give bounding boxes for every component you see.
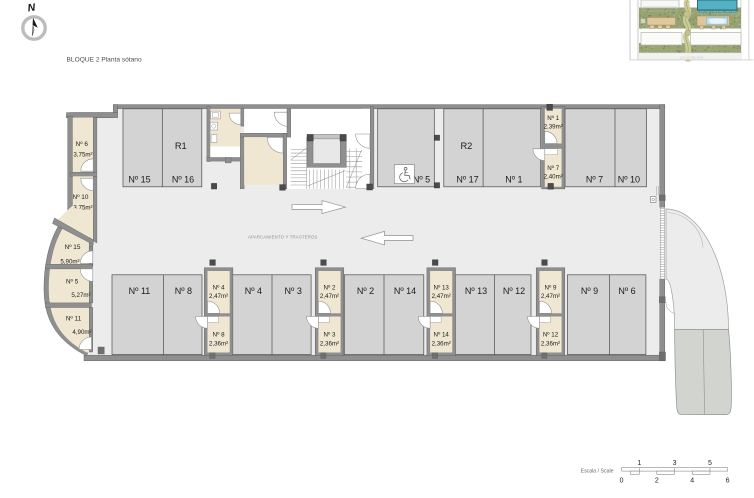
svg-text:Nº 13: Nº 13: [434, 284, 450, 291]
svg-text:2: 2: [655, 478, 659, 485]
svg-text:Nº 6: Nº 6: [618, 286, 635, 296]
svg-text:4,90m²: 4,90m²: [72, 329, 91, 336]
svg-text:Nº 7: Nº 7: [547, 165, 559, 172]
svg-text:R1: R1: [175, 141, 187, 151]
svg-text:Nº 11: Nº 11: [129, 286, 151, 296]
svg-text:Nº 1: Nº 1: [547, 115, 559, 122]
svg-text:Nº 14: Nº 14: [434, 332, 450, 339]
svg-text:2,47m²: 2,47m²: [320, 293, 339, 300]
svg-text:Nº 8: Nº 8: [213, 332, 225, 339]
svg-text:Nº 6: Nº 6: [76, 141, 89, 148]
svg-text:Nº 4: Nº 4: [213, 284, 225, 291]
svg-text:4: 4: [690, 478, 694, 485]
svg-text:Nº 4: Nº 4: [245, 286, 262, 296]
svg-text:1: 1: [637, 460, 641, 467]
svg-text:Nº 2: Nº 2: [324, 284, 336, 291]
svg-text:CALLE DEL MAR: CALLE DEL MAR: [680, 55, 704, 59]
svg-text:2,47m²: 2,47m²: [541, 293, 560, 300]
svg-text:0: 0: [620, 478, 624, 485]
svg-text:Nº 12: Nº 12: [543, 332, 559, 339]
svg-text:Nº 1: Nº 1: [505, 174, 522, 184]
svg-text:Nº 8: Nº 8: [175, 286, 192, 296]
svg-text:Nº 11: Nº 11: [66, 315, 82, 322]
svg-text:3: 3: [673, 460, 677, 467]
svg-text:Nº 10: Nº 10: [73, 194, 89, 201]
svg-text:R2: R2: [460, 141, 472, 151]
svg-text:5,27m²: 5,27m²: [71, 292, 90, 299]
svg-text:2,36m²: 2,36m²: [541, 340, 560, 347]
svg-text:BLOQUE 2 Planta sótano: BLOQUE 2 Planta sótano: [67, 57, 142, 64]
svg-text:2,36m²: 2,36m²: [209, 340, 228, 347]
svg-text:2,47m²: 2,47m²: [432, 293, 451, 300]
svg-text:Nº 16: Nº 16: [172, 174, 194, 184]
svg-text:Nº 7: Nº 7: [586, 174, 603, 184]
svg-text:2,39m²: 2,39m²: [544, 123, 563, 130]
svg-text:2,36m²: 2,36m²: [320, 340, 339, 347]
svg-text:Nº 10: Nº 10: [618, 174, 640, 184]
svg-text:Nº 2: Nº 2: [357, 286, 374, 296]
svg-text:5: 5: [708, 460, 712, 467]
svg-text:Nº 5: Nº 5: [413, 174, 430, 184]
svg-text:2,40m²: 2,40m²: [544, 174, 563, 181]
svg-text:Nº 14: Nº 14: [394, 286, 416, 296]
svg-text:Nº 5: Nº 5: [66, 278, 79, 285]
svg-text:Nº 17: Nº 17: [456, 174, 478, 184]
svg-text:2,47m²: 2,47m²: [209, 293, 228, 300]
svg-text:Nº 9: Nº 9: [581, 286, 598, 296]
svg-text:Nº 9: Nº 9: [545, 284, 557, 291]
svg-text:Nº 3: Nº 3: [285, 286, 302, 296]
svg-text:APARCAMIENTO Y TRASTEROS: APARCAMIENTO Y TRASTEROS: [248, 234, 318, 239]
svg-text:Nº 15: Nº 15: [128, 174, 150, 184]
svg-text:Escala / Scale: Escala / Scale: [581, 469, 614, 475]
svg-text:2,36m²: 2,36m²: [432, 340, 451, 347]
svg-text:6: 6: [726, 478, 730, 485]
svg-text:Nº 3: Nº 3: [324, 332, 336, 339]
svg-text:Nº 12: Nº 12: [503, 286, 525, 296]
svg-text:3,75m²: 3,75m²: [73, 151, 92, 158]
svg-text:Nº 13: Nº 13: [465, 286, 487, 296]
svg-text:Nº 15: Nº 15: [65, 244, 81, 251]
